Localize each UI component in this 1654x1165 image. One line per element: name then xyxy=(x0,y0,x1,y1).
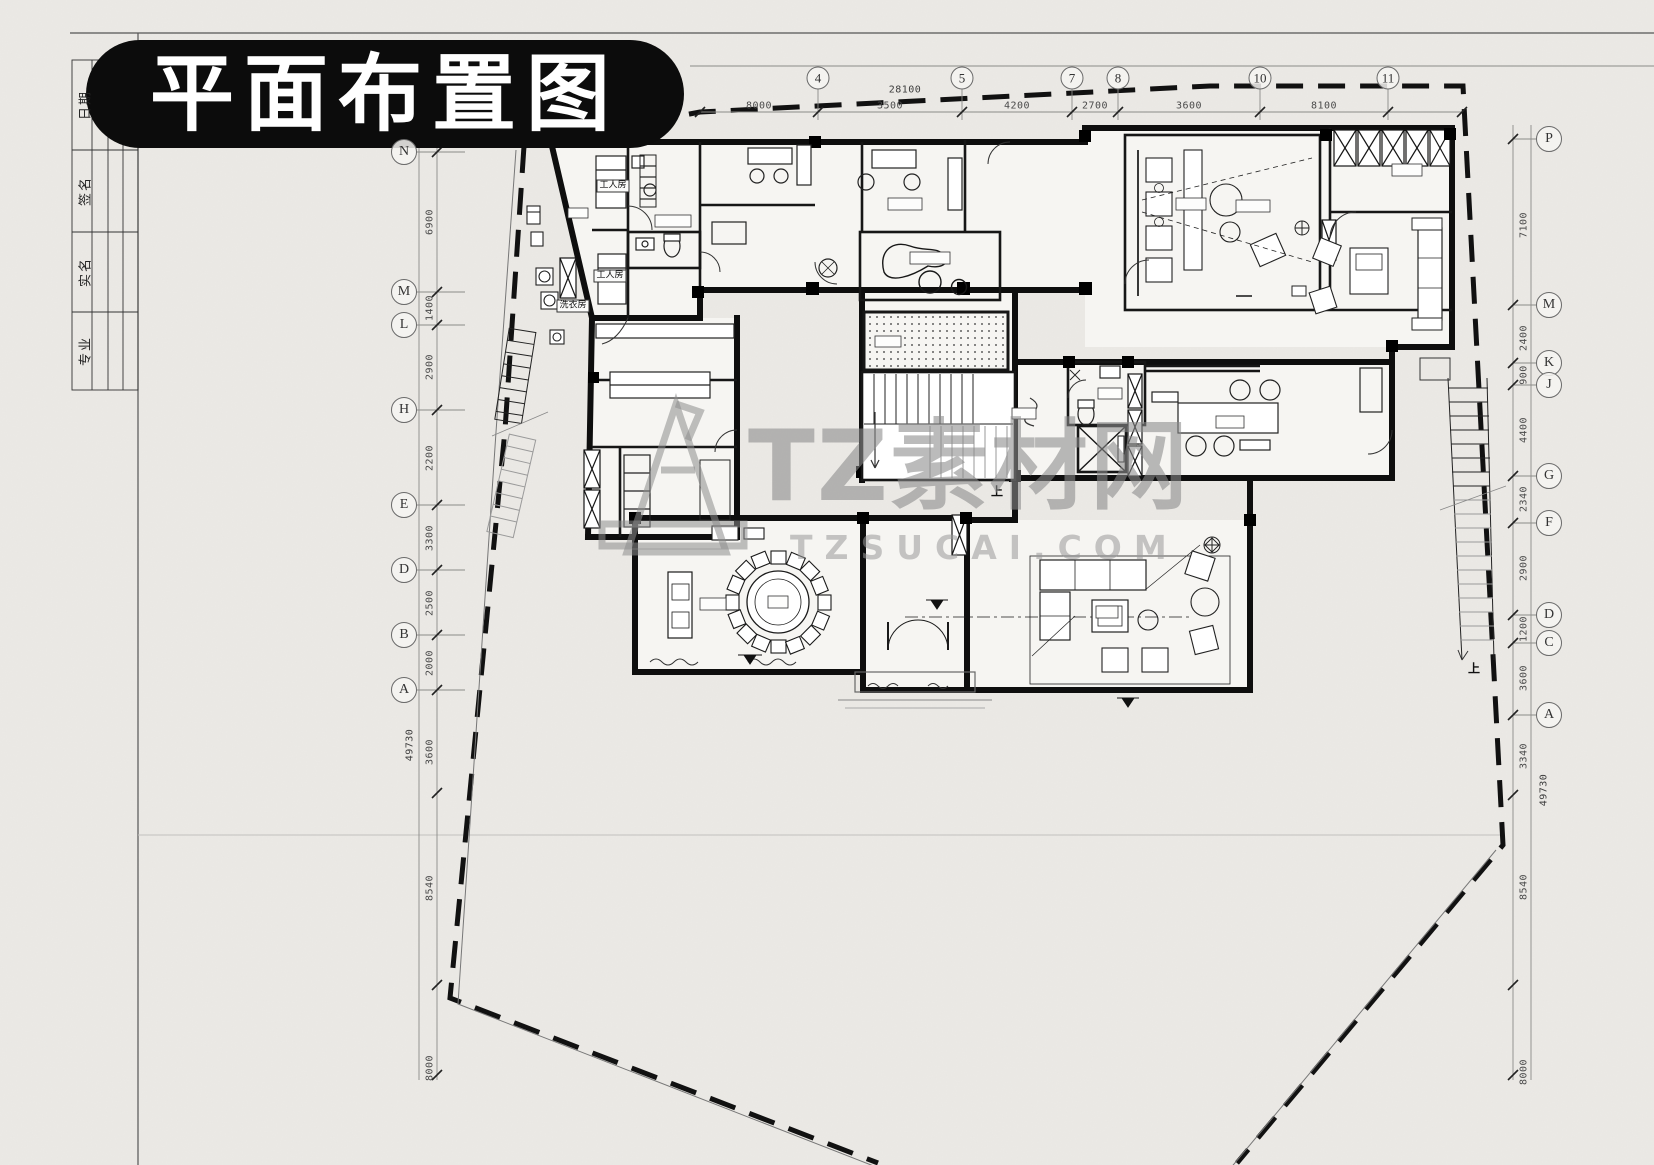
grid-bubble-right: D xyxy=(1536,602,1562,628)
room-label: 洗衣房 xyxy=(556,300,589,313)
dimension-total: 28100 xyxy=(889,85,922,96)
dimension-label: 8000 xyxy=(1519,1059,1530,1085)
dimension-label: 8540 xyxy=(425,875,436,901)
room-label: 工人房 xyxy=(596,180,629,193)
sheet-title: 平面布置图 xyxy=(150,52,620,136)
stair-direction-label: 上 xyxy=(989,487,1005,498)
room-label: 工人房 xyxy=(593,270,626,283)
blueprint-sheet: 平面布置图 日期签名实名专业 4578101180003500420027003… xyxy=(0,0,1654,1165)
grid-bubble-right: M xyxy=(1536,292,1562,318)
dimension-label: 900 xyxy=(1519,365,1530,385)
dimension-label: 3300 xyxy=(425,525,436,551)
grid-bubble-top: 11 xyxy=(1377,67,1400,90)
grid-bubble-left: N xyxy=(391,139,417,165)
grid-bubble-left: E xyxy=(391,492,417,518)
dimension-label: 3600 xyxy=(425,739,436,765)
grid-bubble-right: C xyxy=(1536,630,1562,656)
grid-bubble-right: G xyxy=(1536,463,1562,489)
grid-bubble-left: H xyxy=(391,397,417,423)
dimension-label: 4200 xyxy=(1004,101,1030,112)
grid-bubble-left: D xyxy=(391,557,417,583)
dimension-label: 3500 xyxy=(877,101,903,112)
dimension-label: 2000 xyxy=(425,650,436,676)
dimension-label: 3600 xyxy=(1176,101,1202,112)
title-block-field-label: 专业 xyxy=(75,336,94,366)
title-block-field-label: 签名 xyxy=(75,176,94,206)
title-block-field-label: 日期 xyxy=(75,90,94,120)
grid-bubble-right: F xyxy=(1536,510,1562,536)
dimension-label: 2200 xyxy=(425,445,436,471)
grid-bubble-left: B xyxy=(391,622,417,648)
stair-direction-label: 上 xyxy=(1466,664,1482,675)
dimension-label: 4400 xyxy=(1519,417,1530,443)
grid-bubble-left: L xyxy=(391,312,417,338)
dimension-label: 2700 xyxy=(1082,101,1108,112)
grid-bubble-left: A xyxy=(391,677,417,703)
dimension-label: 7100 xyxy=(1519,212,1530,238)
grid-bubble-top: 4 xyxy=(807,67,830,90)
dimension-label: 2900 xyxy=(425,354,436,380)
dimension-label: 3340 xyxy=(1519,743,1530,769)
dimension-label: 6900 xyxy=(425,209,436,235)
dimension-total: 49730 xyxy=(1539,774,1550,807)
dimension-label: 8540 xyxy=(1519,874,1530,900)
grid-bubble-left: M xyxy=(391,279,417,305)
floor-plan-drawing xyxy=(0,0,1654,1165)
grid-bubble-top: 5 xyxy=(951,67,974,90)
dimension-label: 2400 xyxy=(1519,325,1530,351)
title-block-field-label: 实名 xyxy=(75,257,94,287)
floor-lamp-symbol xyxy=(1204,537,1220,553)
grid-bubble-top: 8 xyxy=(1107,67,1130,90)
dimension-label: 2340 xyxy=(1519,486,1530,512)
dimension-label: 8100 xyxy=(1311,101,1337,112)
dimension-label: 8000 xyxy=(746,101,772,112)
dimension-label: 1200 xyxy=(1519,616,1530,642)
grid-bubble-right: A xyxy=(1536,702,1562,728)
dimension-label: 2900 xyxy=(1519,555,1530,581)
grid-bubble-top: 10 xyxy=(1249,67,1272,90)
grid-bubble-right: P xyxy=(1536,126,1562,152)
grid-bubble-right: J xyxy=(1536,372,1562,398)
lamp-symbol xyxy=(1295,221,1309,235)
main-staircase xyxy=(862,372,1037,480)
grid-bubble-top: 7 xyxy=(1061,67,1084,90)
sheet-title-pill: 平面布置图 xyxy=(86,40,684,148)
dimension-label: 3600 xyxy=(1519,665,1530,691)
dimension-total: 49730 xyxy=(405,729,416,762)
dimension-label: 1400 xyxy=(425,295,436,321)
dimension-label: 2500 xyxy=(425,590,436,616)
dimension-label: 8000 xyxy=(425,1055,436,1081)
